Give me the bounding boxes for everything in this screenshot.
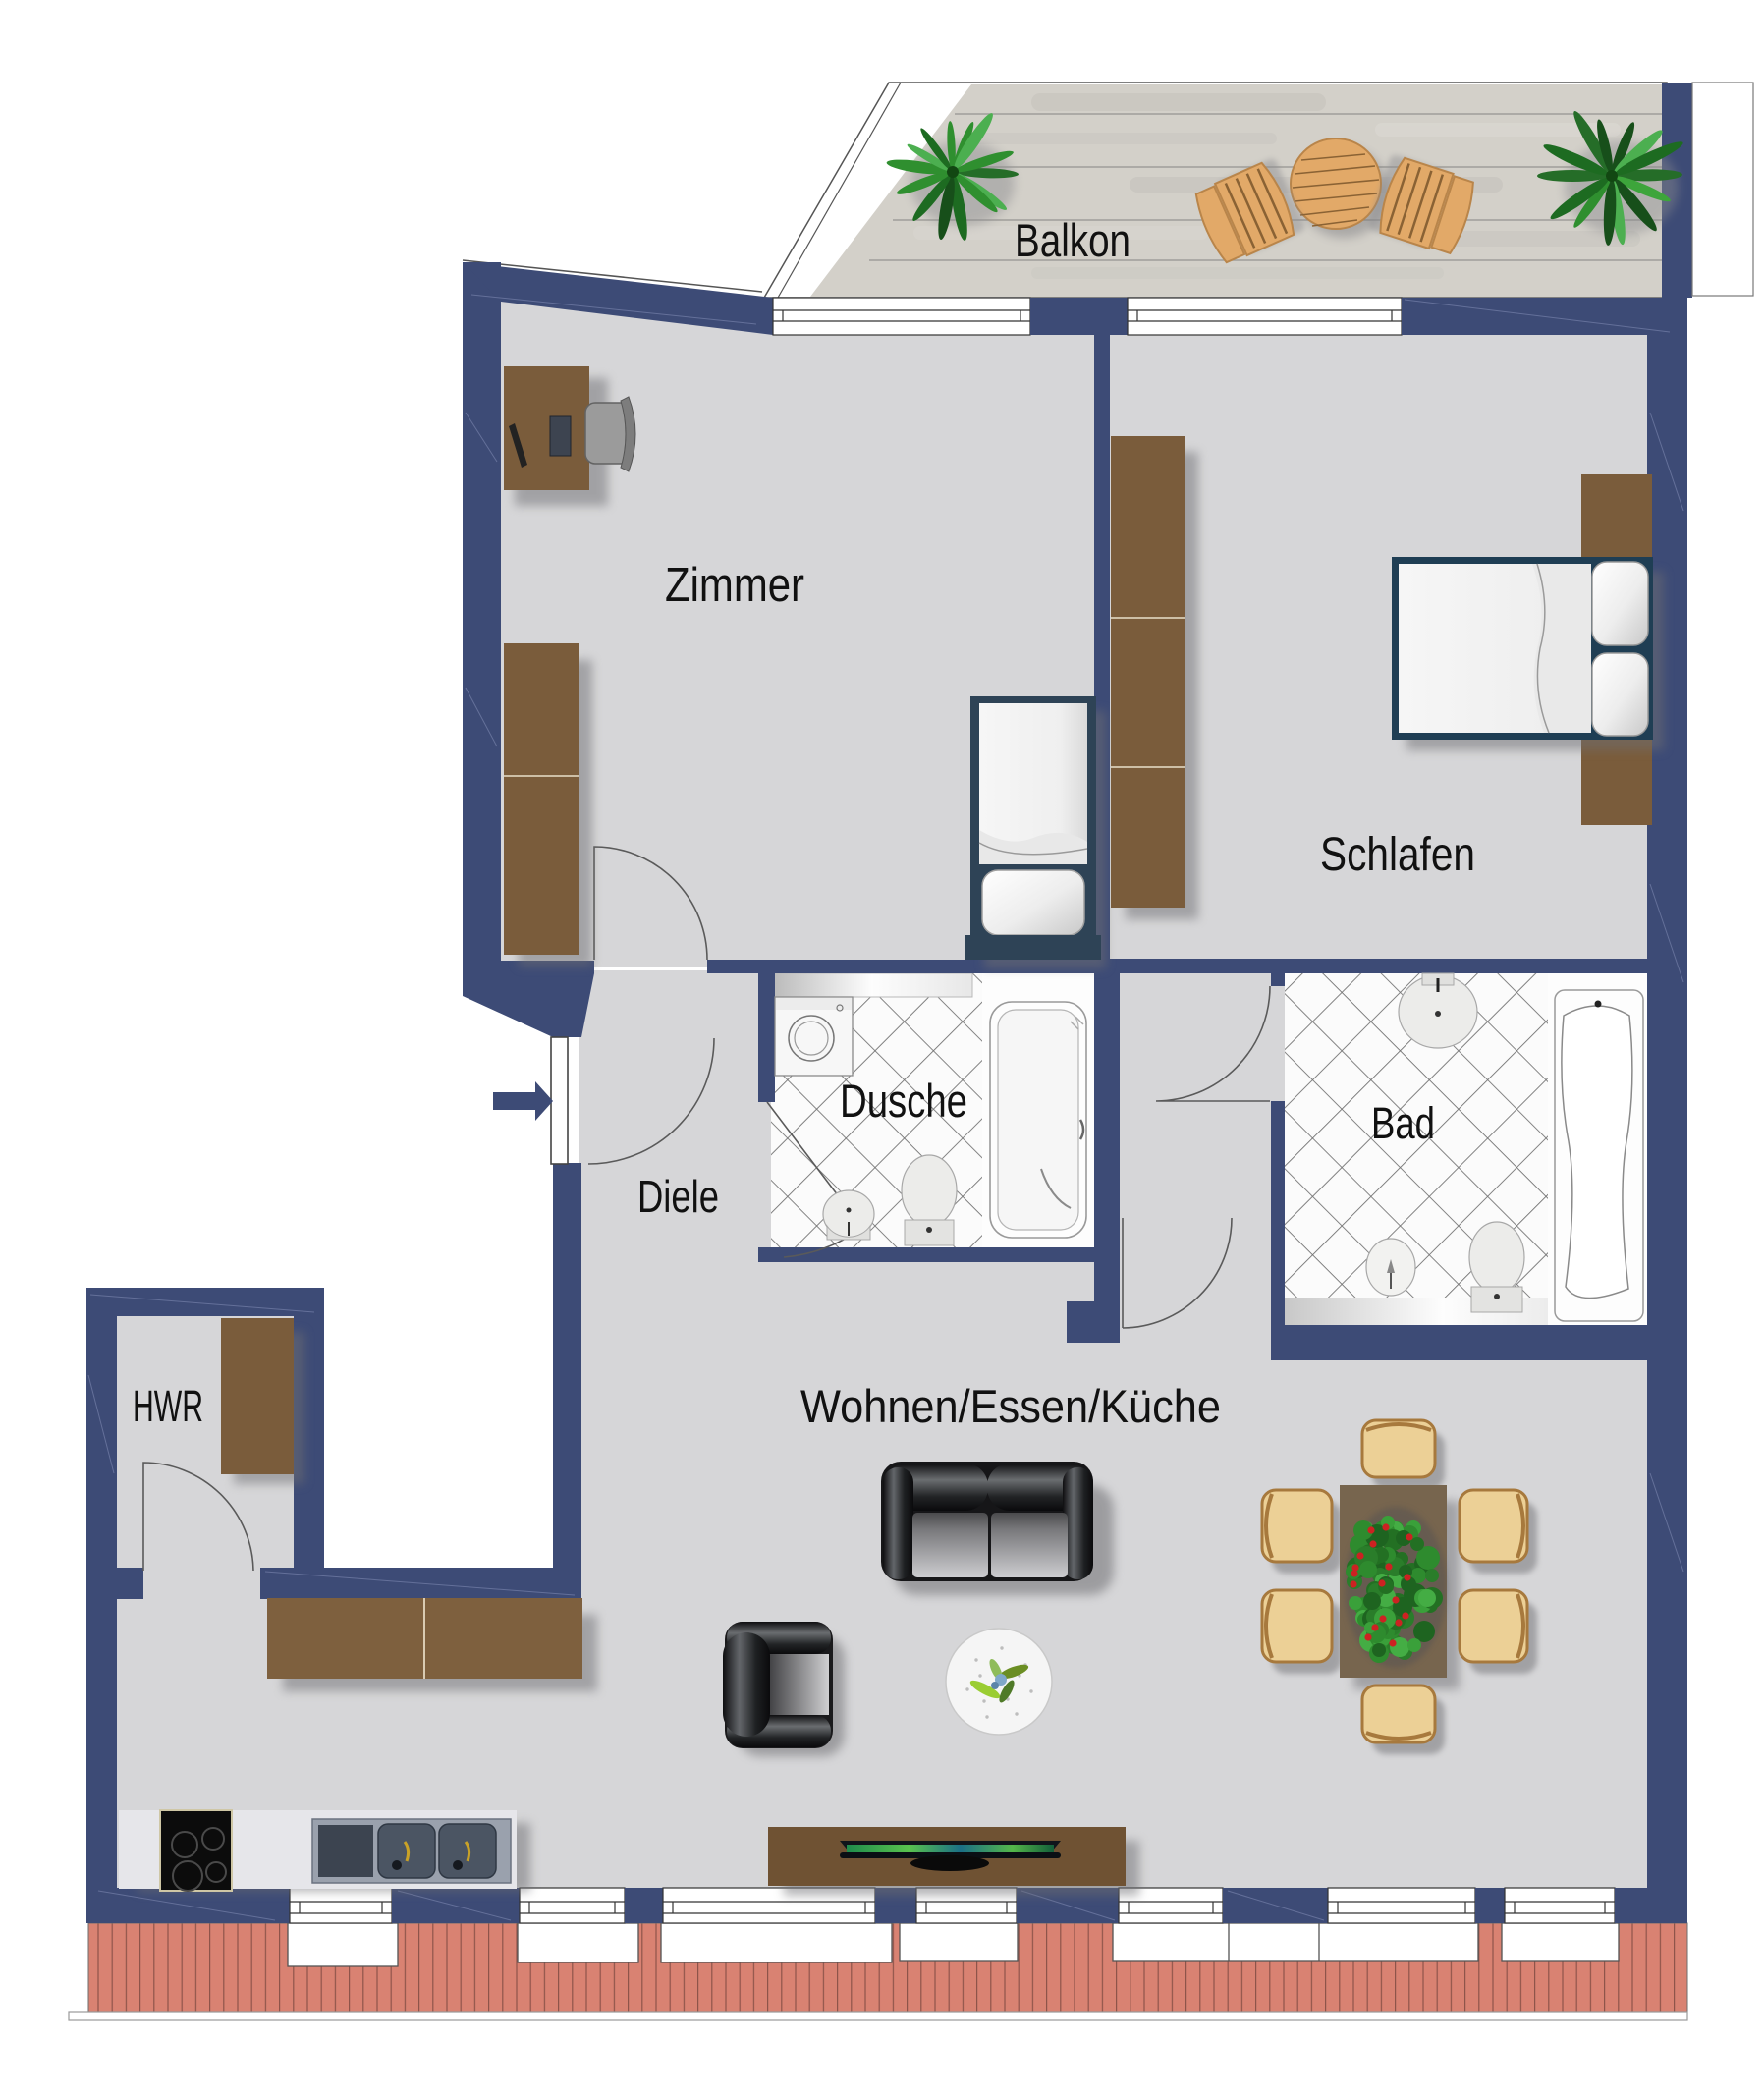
svg-text:Diele: Diele [637, 1171, 719, 1222]
svg-text:Dusche: Dusche [840, 1075, 967, 1127]
svg-text:Balkon: Balkon [1015, 214, 1130, 266]
svg-text:HWR: HWR [133, 1381, 203, 1431]
svg-text:Zimmer: Zimmer [665, 559, 804, 612]
svg-text:Wohnen/Essen/Küche: Wohnen/Essen/Küche [800, 1380, 1221, 1432]
svg-text:Bad: Bad [1371, 1098, 1435, 1148]
svg-text:Schlafen: Schlafen [1320, 829, 1475, 881]
